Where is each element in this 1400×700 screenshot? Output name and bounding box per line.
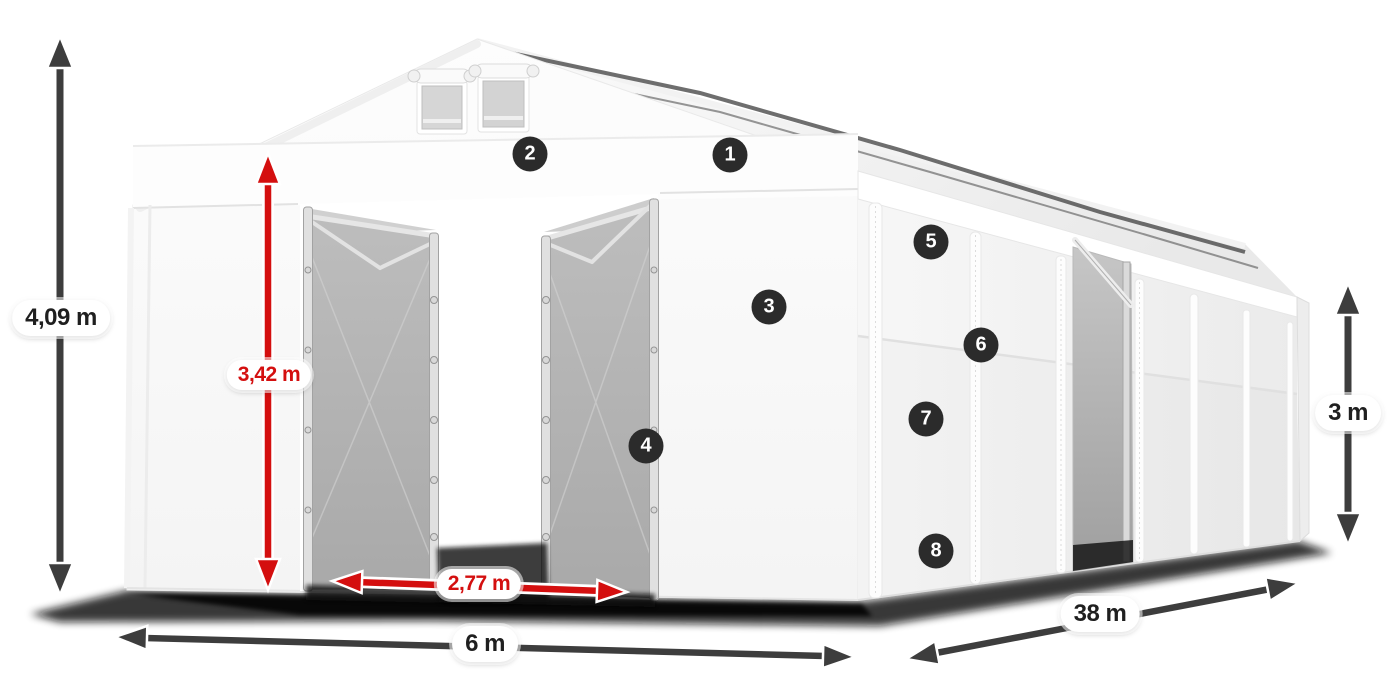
side-opening — [1073, 240, 1133, 571]
entrance-door-right — [544, 207, 655, 598]
marker-badge-6: 6 — [964, 328, 999, 363]
tent-illustration — [0, 0, 1400, 700]
marker-badge-3: 3 — [752, 290, 787, 325]
dimension-label-entrance-height: 3,42 m — [227, 360, 311, 390]
window-roller-right — [475, 64, 533, 78]
window-roller-left — [414, 69, 470, 83]
dimension-label-total-height: 4,09 m — [12, 300, 110, 336]
gable-window-left — [408, 69, 476, 134]
marker-badge-8: 8 — [919, 534, 954, 569]
marker-badge-4: 4 — [629, 429, 664, 464]
dimension-label-total-length: 38 m — [1061, 596, 1140, 632]
marker-badge-2: 2 — [513, 137, 548, 172]
marker-badge-1: 1 — [713, 138, 748, 173]
dimension-label-entrance-width: 2,77 m — [437, 569, 521, 599]
marker-badge-5: 5 — [914, 225, 949, 260]
marker-badge-7: 7 — [909, 402, 944, 437]
entrance-door-left — [306, 216, 436, 589]
dimension-label-side-height: 3 m — [1315, 395, 1381, 431]
entrance-opening — [300, 194, 659, 607]
tent-dimension-diagram: 4,09 m 3,42 m 2,77 m 6 m 38 m 3 m 1 2 3 … — [0, 0, 1400, 700]
dimension-label-total-width: 6 m — [452, 626, 518, 662]
gable-window-right — [469, 64, 539, 132]
